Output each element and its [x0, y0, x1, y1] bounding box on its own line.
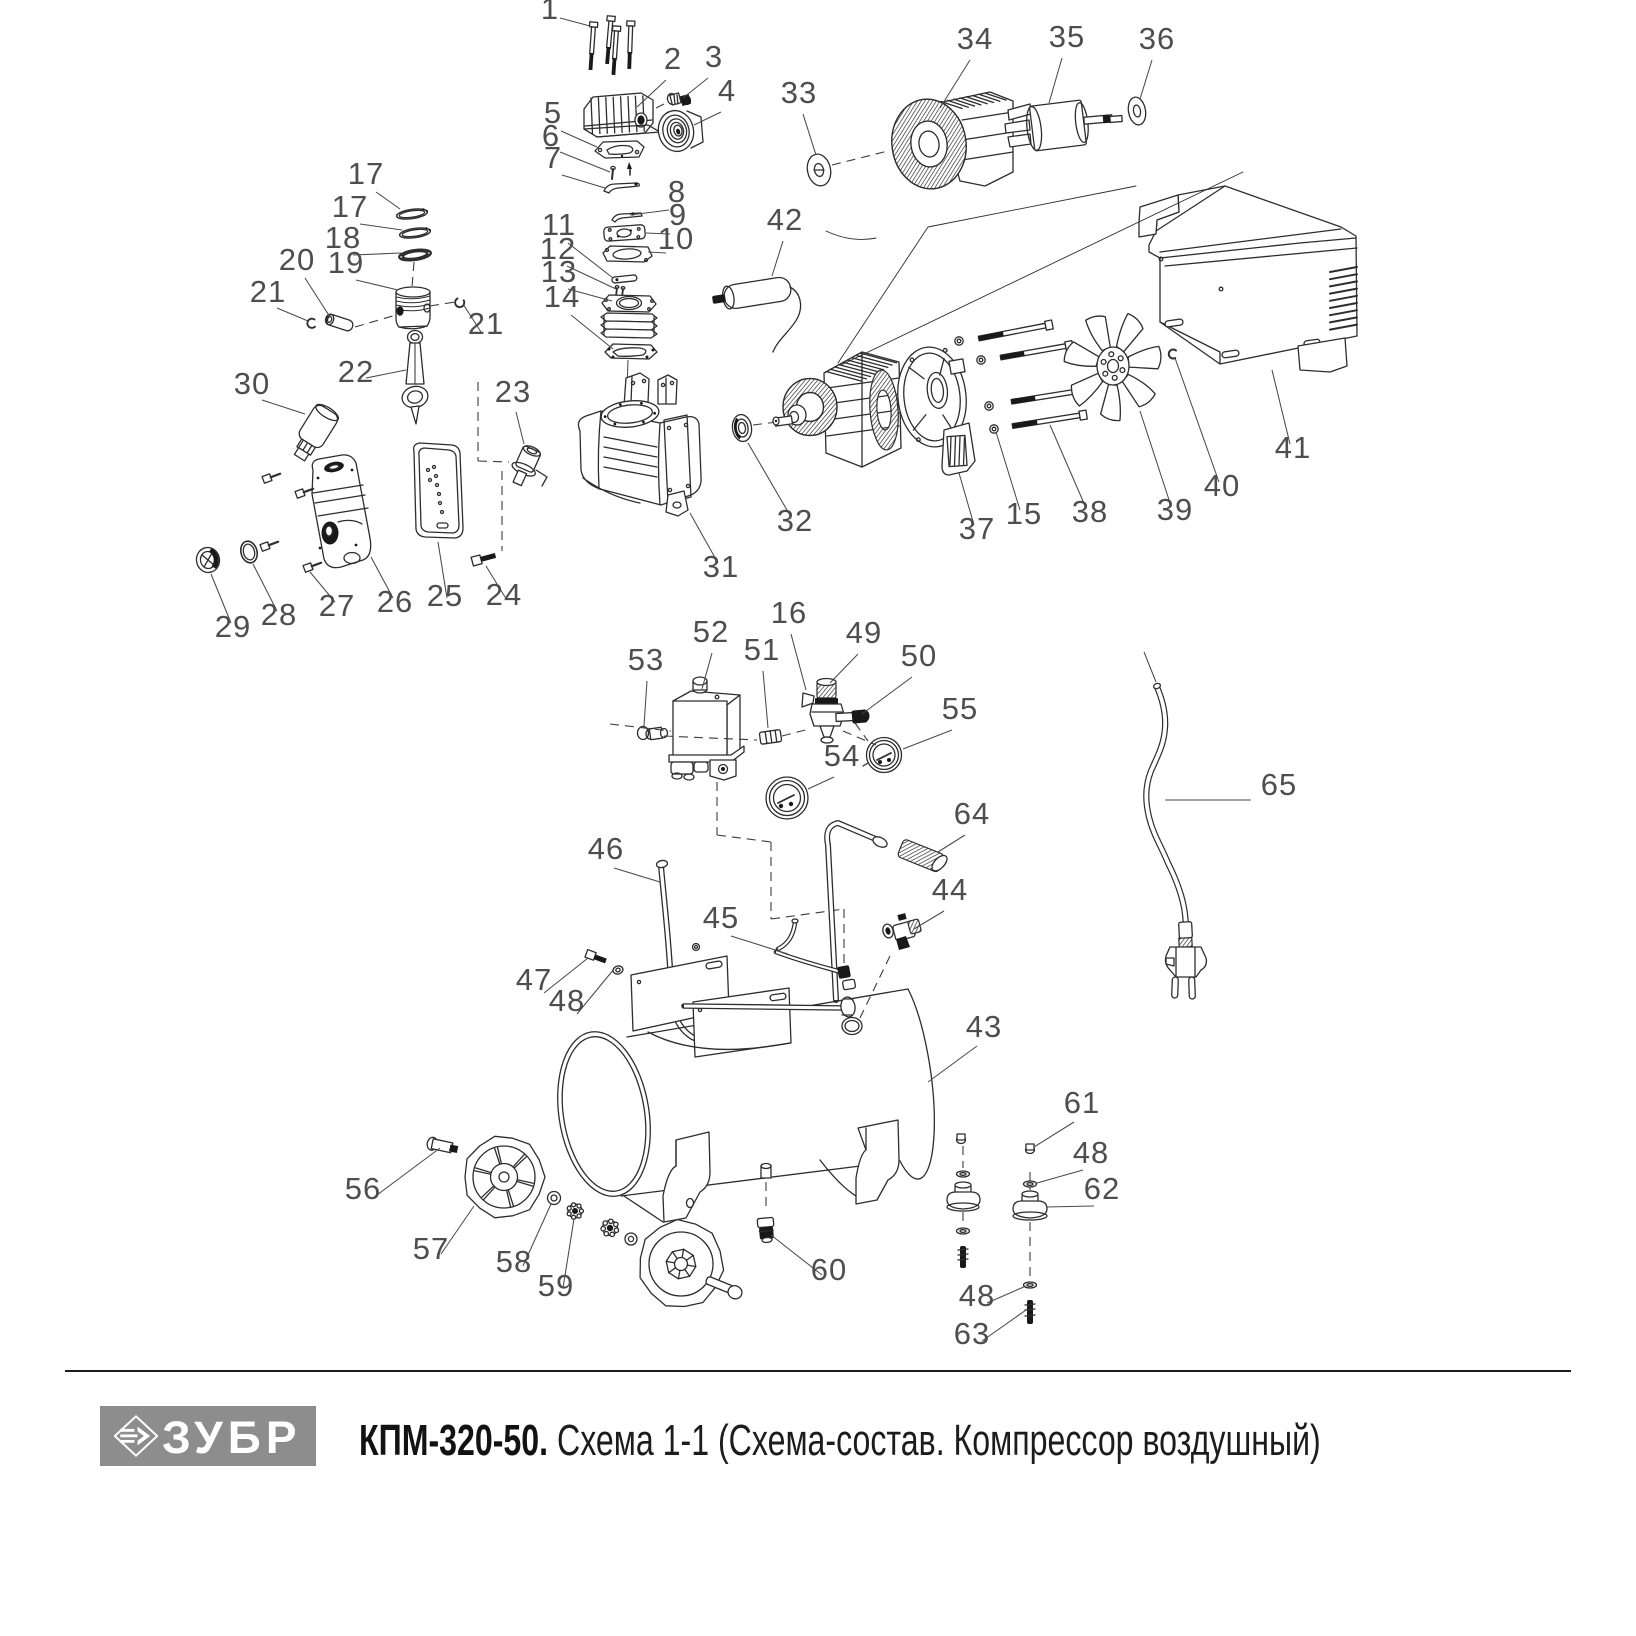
svg-text:1: 1: [541, 0, 559, 26]
svg-text:48: 48: [1073, 1135, 1109, 1170]
svg-text:60: 60: [811, 1252, 847, 1287]
svg-text:30: 30: [234, 366, 270, 401]
svg-text:14: 14: [544, 279, 580, 314]
svg-text:42: 42: [767, 202, 803, 237]
svg-text:21: 21: [250, 274, 286, 309]
svg-text:23: 23: [495, 374, 531, 409]
svg-text:64: 64: [954, 796, 990, 831]
svg-text:10: 10: [658, 221, 694, 256]
svg-text:27: 27: [319, 588, 355, 623]
svg-text:15: 15: [1006, 496, 1042, 531]
svg-text:50: 50: [901, 638, 937, 673]
svg-text:44: 44: [932, 872, 968, 907]
svg-text:20: 20: [279, 242, 315, 277]
svg-text:61: 61: [1064, 1085, 1100, 1120]
svg-text:63: 63: [954, 1316, 990, 1351]
svg-text:54: 54: [824, 738, 860, 773]
svg-text:17: 17: [332, 189, 368, 224]
svg-text:47: 47: [516, 962, 552, 997]
svg-text:43: 43: [966, 1009, 1002, 1044]
svg-text:45: 45: [703, 900, 739, 935]
svg-text:3: 3: [705, 39, 723, 74]
svg-text:41: 41: [1275, 430, 1311, 465]
svg-text:26: 26: [377, 584, 413, 619]
svg-text:38: 38: [1072, 494, 1108, 529]
svg-text:2: 2: [664, 41, 682, 76]
svg-text:65: 65: [1261, 767, 1297, 802]
svg-text:55: 55: [942, 691, 978, 726]
svg-text:17: 17: [348, 156, 384, 191]
svg-text:37: 37: [959, 511, 995, 546]
svg-text:29: 29: [215, 609, 251, 644]
svg-text:36: 36: [1139, 21, 1175, 56]
svg-text:51: 51: [744, 632, 780, 667]
svg-text:52: 52: [693, 614, 729, 649]
svg-text:58: 58: [496, 1244, 532, 1279]
svg-text:39: 39: [1157, 492, 1193, 527]
svg-text:31: 31: [703, 549, 739, 584]
svg-text:48: 48: [549, 983, 585, 1018]
svg-text:33: 33: [781, 75, 817, 110]
svg-text:7: 7: [544, 140, 562, 175]
svg-text:40: 40: [1204, 468, 1240, 503]
svg-text:4: 4: [718, 73, 736, 108]
svg-text:32: 32: [777, 503, 813, 538]
svg-text:19: 19: [328, 245, 364, 280]
svg-text:28: 28: [261, 597, 297, 632]
svg-text:16: 16: [771, 595, 807, 630]
svg-text:35: 35: [1049, 19, 1085, 54]
svg-text:59: 59: [538, 1268, 574, 1303]
svg-text:56: 56: [345, 1171, 381, 1206]
svg-text:53: 53: [628, 642, 664, 677]
svg-text:21: 21: [468, 306, 504, 341]
svg-text:57: 57: [413, 1231, 449, 1266]
svg-text:48: 48: [959, 1278, 995, 1313]
svg-text:62: 62: [1084, 1171, 1120, 1206]
svg-text:46: 46: [588, 831, 624, 866]
svg-text:34: 34: [957, 21, 993, 56]
svg-text:49: 49: [846, 615, 882, 650]
svg-text:22: 22: [338, 354, 374, 389]
